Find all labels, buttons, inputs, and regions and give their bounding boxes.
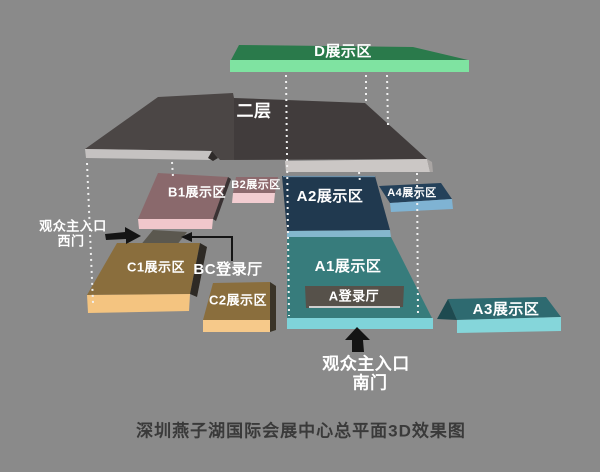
c2-area-side-face <box>270 282 276 332</box>
a3-area-label: A3展示区 <box>473 301 540 318</box>
a2-area-front-face <box>287 230 391 237</box>
b2-area-label: B2展示区 <box>231 178 281 191</box>
c1-area-label: C1展示区 <box>127 259 185 274</box>
diagram-caption: 深圳燕子湖国际会展中心总平面3D效果图 <box>136 420 466 440</box>
a1-area-label: A1展示区 <box>315 258 382 275</box>
site-plan-3d-diagram: D展示区 二层 B1展示区 B2展示区 A2展示区 A4展示区 A1展示区 A登… <box>0 0 600 472</box>
d-area-label: D展示区 <box>314 43 372 60</box>
south-entrance-label-line2: 南门 <box>353 372 388 392</box>
b1-area-front-face <box>138 219 213 229</box>
c2-area-label: C2展示区 <box>209 292 267 307</box>
south-entrance-label-line1: 观众主入口 <box>321 353 410 373</box>
b2-area-front-face <box>232 193 275 203</box>
dotted-line <box>387 75 388 126</box>
west-entrance-label-line1: 观众主入口 <box>39 218 107 233</box>
a2-area-label: A2展示区 <box>297 188 364 205</box>
second-floor-front-right-face <box>285 159 430 172</box>
b1-area-label: B1展示区 <box>168 184 226 199</box>
block-a2-area <box>282 176 391 237</box>
a1-area-front-face <box>287 318 433 329</box>
d-area-front-face <box>230 60 469 72</box>
a-hall-label: A登录厅 <box>329 288 379 303</box>
c2-area-front-face <box>203 320 270 332</box>
second-floor-label: 二层 <box>237 101 272 120</box>
west-entrance-label-line2: 西门 <box>57 233 84 248</box>
a4-area-label: A4展示区 <box>387 186 437 199</box>
c1-area-front-face <box>87 294 190 313</box>
bc-hall-label: BC登录厅 <box>193 260 262 278</box>
